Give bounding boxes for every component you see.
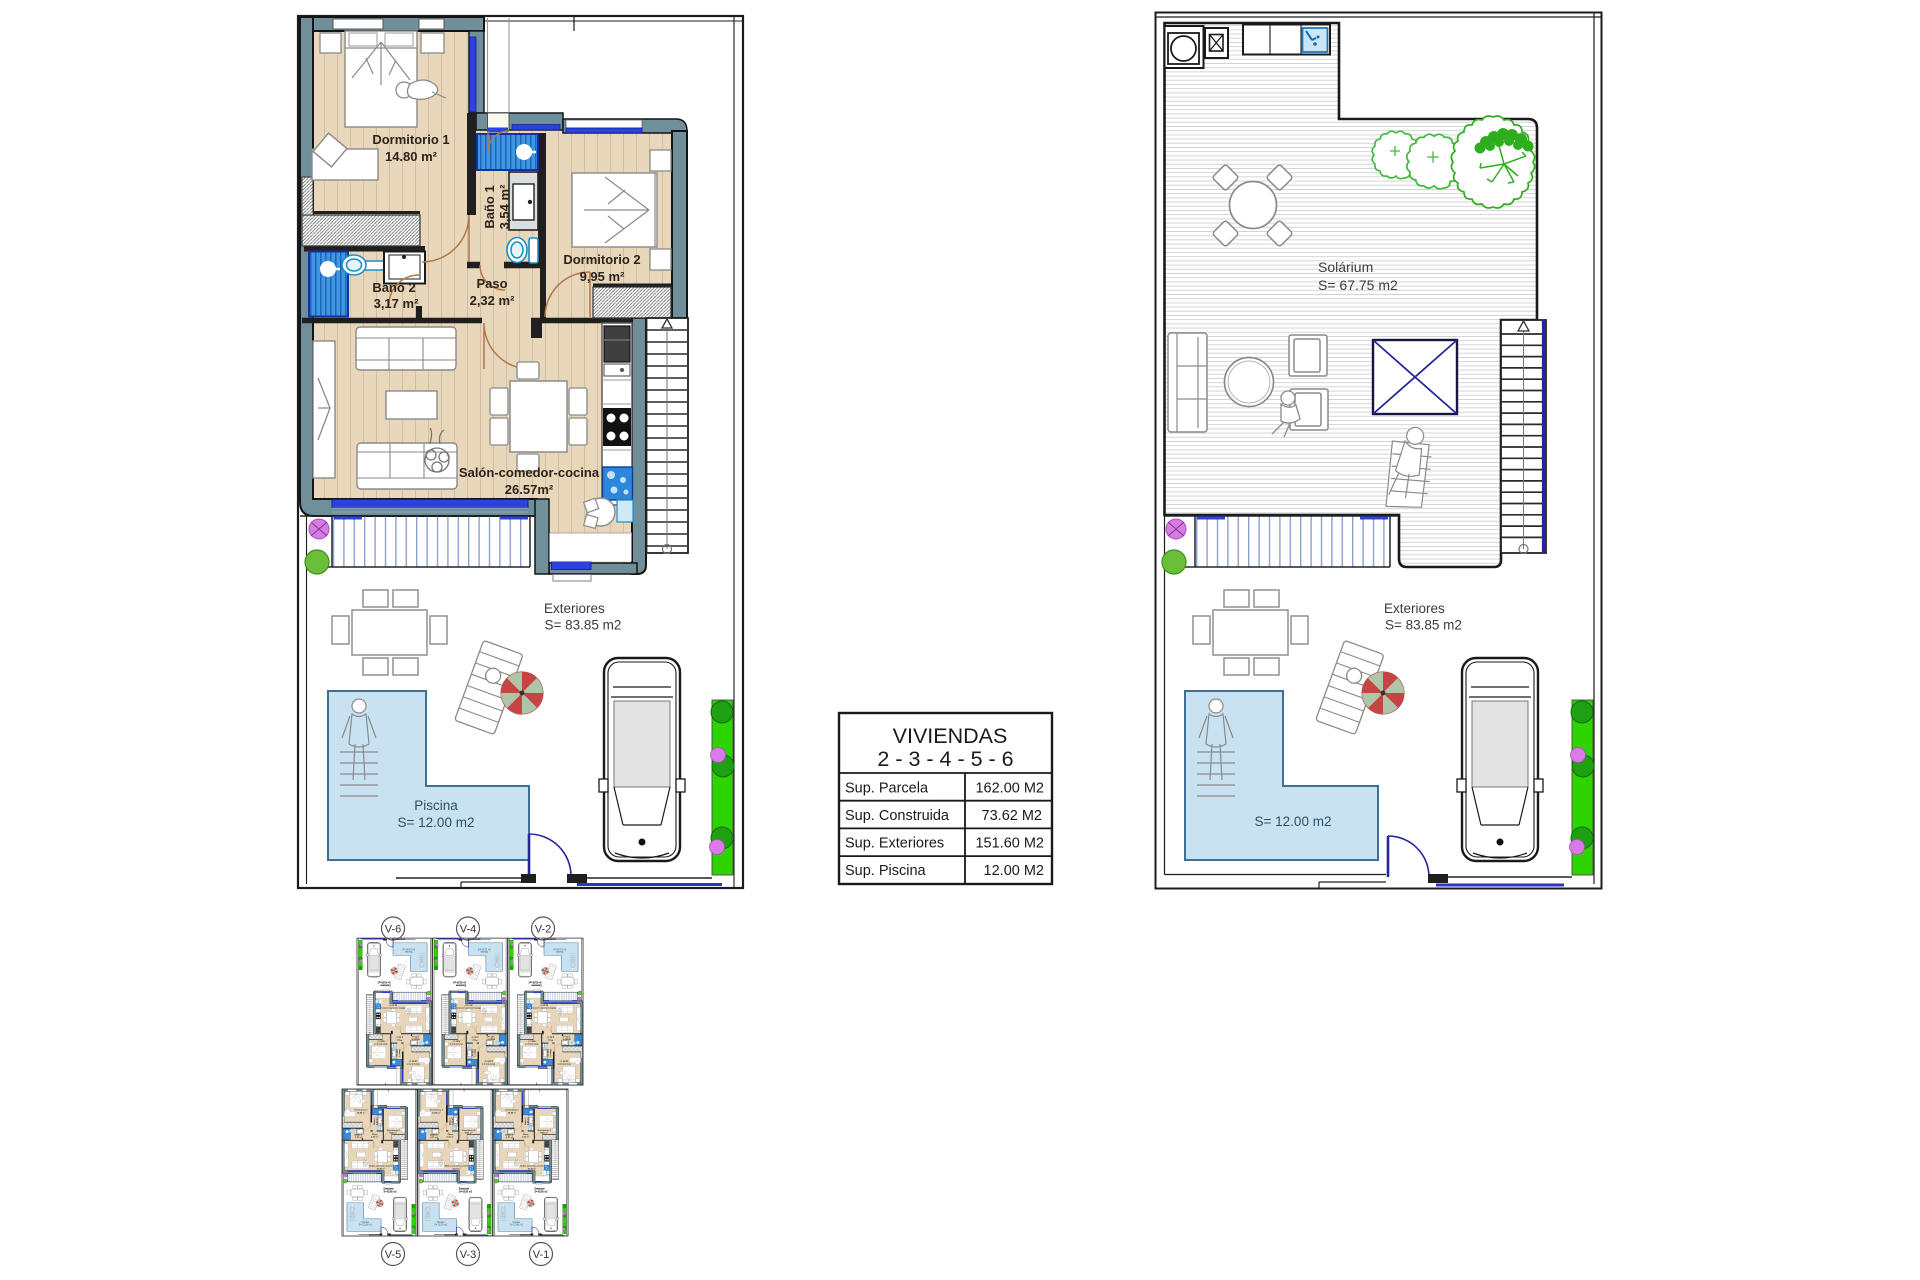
svg-text:S= 83.85 m2: S= 83.85 m2 [1385, 618, 1462, 633]
svg-text:V-6: V-6 [385, 924, 402, 936]
svg-text:Sup. Piscina: Sup. Piscina [845, 863, 927, 879]
svg-text:3,17 m²: 3,17 m² [374, 296, 419, 311]
svg-text:V-5: V-5 [385, 1249, 402, 1261]
svg-text:S= 67.75 m2: S= 67.75 m2 [1318, 277, 1398, 293]
svg-text:Dormitorio 2: Dormitorio 2 [563, 252, 640, 267]
svg-text:Paso: Paso [476, 276, 507, 291]
svg-text:73.62 M2: 73.62 M2 [982, 808, 1042, 824]
svg-text:Baño 1: Baño 1 [482, 185, 497, 228]
svg-text:14.80 m²: 14.80 m² [385, 149, 438, 164]
svg-text:Sup. Parcela: Sup. Parcela [845, 781, 929, 797]
svg-text:Salón-comedor-cocina: Salón-comedor-cocina [459, 465, 600, 480]
svg-text:S= 83.85 m2: S= 83.85 m2 [545, 618, 622, 633]
svg-text:2 - 3 - 4 - 5 - 6: 2 - 3 - 4 - 5 - 6 [877, 747, 1013, 771]
svg-text:151.60 M2: 151.60 M2 [975, 836, 1044, 852]
svg-text:V-4: V-4 [460, 924, 477, 936]
svg-text:Dormitorio 1: Dormitorio 1 [372, 132, 449, 147]
svg-text:162.00 M2: 162.00 M2 [975, 781, 1044, 797]
svg-text:26.57m²: 26.57m² [505, 482, 554, 497]
svg-text:12.00 M2: 12.00 M2 [984, 863, 1044, 879]
svg-text:VIVIENDAS: VIVIENDAS [893, 724, 1008, 748]
svg-text:V-2: V-2 [535, 924, 552, 936]
svg-text:Piscina: Piscina [414, 798, 458, 813]
svg-text:S= 12.00 m2: S= 12.00 m2 [398, 815, 475, 830]
svg-text:3,54 m²: 3,54 m² [497, 184, 512, 229]
svg-text:Sup. Exteriores: Sup. Exteriores [845, 836, 944, 852]
svg-text:Sup. Construida: Sup. Construida [845, 808, 950, 824]
svg-text:S= 12.00 m2: S= 12.00 m2 [1255, 814, 1332, 829]
svg-text:Exteriores: Exteriores [1384, 601, 1445, 616]
svg-text:2,32 m²: 2,32 m² [470, 293, 515, 308]
svg-text:V-3: V-3 [460, 1249, 477, 1261]
svg-text:Exteriores: Exteriores [544, 601, 605, 616]
svg-text:V-1: V-1 [533, 1249, 550, 1261]
svg-text:Solárium: Solárium [1318, 259, 1373, 275]
svg-text:Baño 2: Baño 2 [372, 280, 415, 295]
svg-text:9,95 m²: 9,95 m² [580, 269, 625, 284]
